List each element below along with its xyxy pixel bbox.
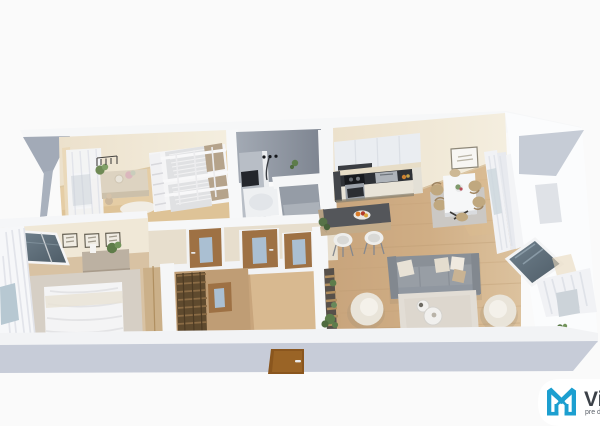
svg-text:pre de: pre de [585, 409, 600, 416]
svg-text:Viz: Viz [584, 388, 600, 411]
